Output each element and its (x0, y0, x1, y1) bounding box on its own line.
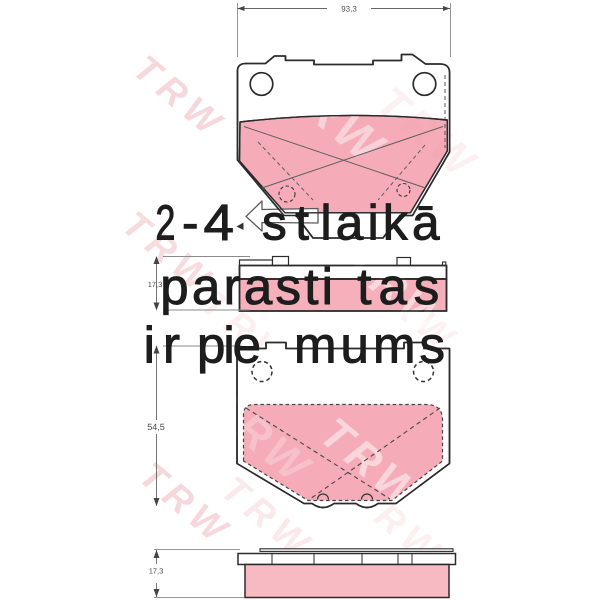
svg-text:tas: tas (357, 258, 439, 315)
svg-text:-: - (182, 196, 199, 251)
svg-text:17,3: 17,3 (149, 567, 164, 576)
svg-text:54,5: 54,5 (147, 422, 165, 432)
svg-text:93,3: 93,3 (341, 5, 357, 14)
svg-text:parasti: parasti (160, 258, 333, 315)
svg-text:2: 2 (155, 196, 175, 251)
svg-text:pie: pie (197, 317, 261, 374)
svg-text:4: 4 (204, 194, 235, 251)
svg-text:st: st (262, 196, 309, 251)
